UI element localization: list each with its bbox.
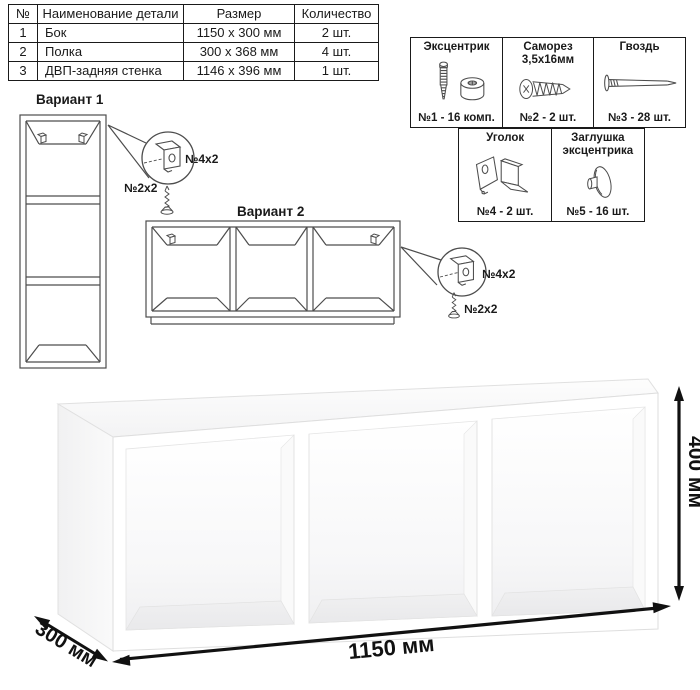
- table-row: 3 ДВП-задняя стенка 1146 x 396 мм 1 шт.: [9, 62, 379, 81]
- shelf-compartment-2: [309, 421, 477, 623]
- angle-bracket-icon: [467, 149, 543, 201]
- header-qty: Количество: [295, 5, 379, 24]
- part-qty: 1 шт.: [295, 62, 379, 81]
- part-qty: 4 шт.: [295, 43, 379, 62]
- hardware-cell-screw: Саморез 3,5x16мм №2 - 2 шт.: [502, 37, 595, 128]
- hardware-cell-nail: Гвоздь №3 - 28 шт.: [593, 37, 686, 128]
- hardware-title: Уголок: [486, 132, 524, 145]
- hardware-title: Гвоздь: [619, 41, 659, 54]
- hardware-legend-row1: Эксцентрик №1 - 16 комп. Саморез 3,5x16м…: [410, 37, 686, 128]
- hardware-count: №5 - 16 шт.: [566, 206, 629, 218]
- screw-icon: [161, 186, 173, 214]
- table-row: 2 Полка 300 x 368 мм 4 шт.: [9, 43, 379, 62]
- table-row: 1 Бок 1150 x 300 мм 2 шт.: [9, 24, 379, 43]
- part-size: 300 x 368 мм: [184, 43, 295, 62]
- nail-icon: [599, 68, 681, 98]
- part-num: 2: [9, 43, 38, 62]
- wall-clip-icon: [79, 133, 87, 143]
- hardware-title: Заглушка эксцентрика: [563, 132, 634, 158]
- variant2-callout: №4x2 №2x2: [401, 247, 516, 318]
- header-num: №: [9, 5, 38, 24]
- part-size: 1146 x 396 мм: [184, 62, 295, 81]
- eccentric-cap-icon: [576, 159, 620, 205]
- eccentric-fitting-icon: [417, 60, 497, 106]
- header-size: Размер: [184, 5, 295, 24]
- shelf-3d-render: [58, 379, 658, 651]
- dimension-height-label: 400 мм: [684, 436, 700, 508]
- hardware-cell-angle-bracket: Уголок №4 - 2 шт.: [458, 128, 552, 222]
- part-name: Бок: [38, 24, 184, 43]
- variant2-label: Вариант 2: [237, 204, 304, 219]
- variant1-callout: №4x2 №2x2: [108, 125, 219, 214]
- shelf-compartment-1: [126, 435, 294, 630]
- hardware-count: №2 - 2 шт.: [520, 112, 576, 124]
- part-num: 3: [9, 62, 38, 81]
- part-num: 1: [9, 24, 38, 43]
- assembly-instruction-sheet: №4x2 №2x2 №4x2 №2x2: [0, 0, 700, 690]
- hardware-count: №4 - 2 шт.: [477, 206, 533, 218]
- hardware-title: Эксцентрик: [423, 41, 489, 54]
- wall-clip-icon: [371, 234, 379, 244]
- shelf-left-face: [58, 404, 113, 651]
- hardware-title: Саморез 3,5x16мм: [522, 41, 574, 67]
- part-size: 1150 x 300 мм: [184, 24, 295, 43]
- variant2-bracket-qty-label: №4x2: [482, 267, 516, 281]
- screw-icon: [449, 293, 460, 318]
- variant1-screw-qty-label: №2x2: [124, 181, 158, 195]
- shelf-compartment-3: [492, 407, 645, 616]
- wall-clip-icon: [38, 133, 46, 143]
- variant2-shelf-drawing: [146, 221, 400, 324]
- screw-icon: [512, 69, 584, 109]
- part-name: ДВП-задняя стенка: [38, 62, 184, 81]
- parts-table: № Наименование детали Размер Количество …: [8, 4, 379, 81]
- hardware-count: №3 - 28 шт.: [608, 112, 671, 124]
- variant1-shelf-drawing: [20, 115, 106, 368]
- hardware-cell-eccentric: Эксцентрик №1 - 16 комп.: [410, 37, 503, 128]
- part-qty: 2 шт.: [295, 24, 379, 43]
- variant1-label: Вариант 1: [36, 92, 103, 107]
- variant2-screw-qty-label: №2x2: [464, 302, 498, 316]
- hardware-cell-cap: Заглушка эксцентрика №5 - 16 шт.: [551, 128, 645, 222]
- header-name: Наименование детали: [38, 5, 184, 24]
- hardware-legend-row2: Уголок №4 - 2 шт. Заглушка эксцентрика: [458, 128, 645, 222]
- hardware-count: №1 - 16 комп.: [418, 112, 495, 124]
- part-name: Полка: [38, 43, 184, 62]
- parts-table-header-row: № Наименование детали Размер Количество: [9, 5, 379, 24]
- wall-clip-icon: [167, 234, 175, 244]
- variant1-bracket-qty-label: №4x2: [185, 152, 219, 166]
